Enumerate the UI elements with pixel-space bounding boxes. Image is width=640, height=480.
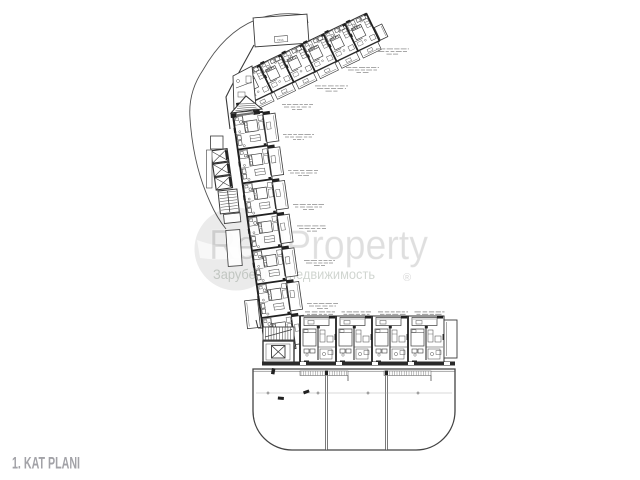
svg-text:®: ® (403, 272, 411, 284)
svg-text:ODA: ODA (277, 38, 284, 42)
svg-text:1. KAT PLANI: 1. KAT PLANI (12, 455, 80, 473)
